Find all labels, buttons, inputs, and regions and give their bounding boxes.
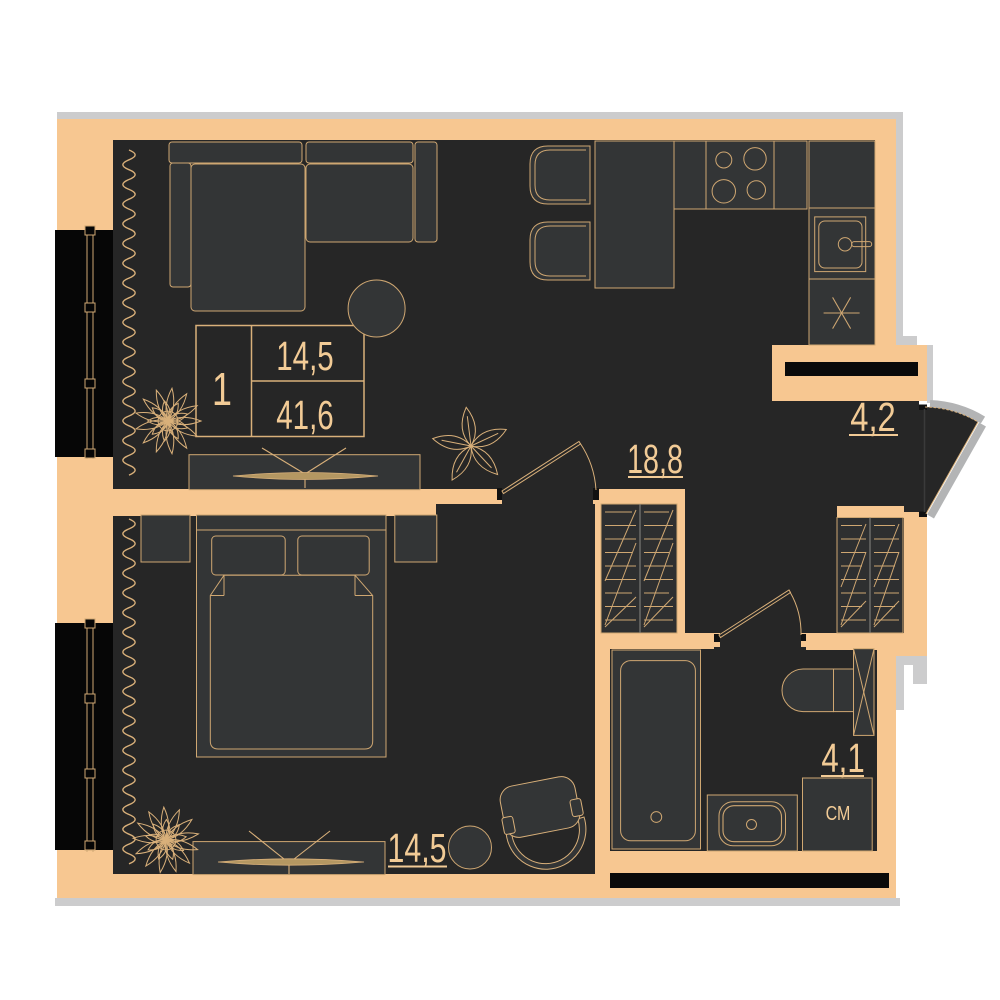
svg-text:1: 1: [212, 364, 232, 415]
svg-text:4,2: 4,2: [850, 393, 896, 439]
svg-text:41,6: 41,6: [276, 392, 333, 438]
svg-text:СМ: СМ: [826, 802, 851, 824]
svg-text:18,8: 18,8: [627, 437, 683, 482]
svg-text:4,1: 4,1: [821, 735, 864, 781]
svg-text:14,5: 14,5: [276, 333, 333, 379]
svg-text:14,5: 14,5: [387, 824, 446, 871]
